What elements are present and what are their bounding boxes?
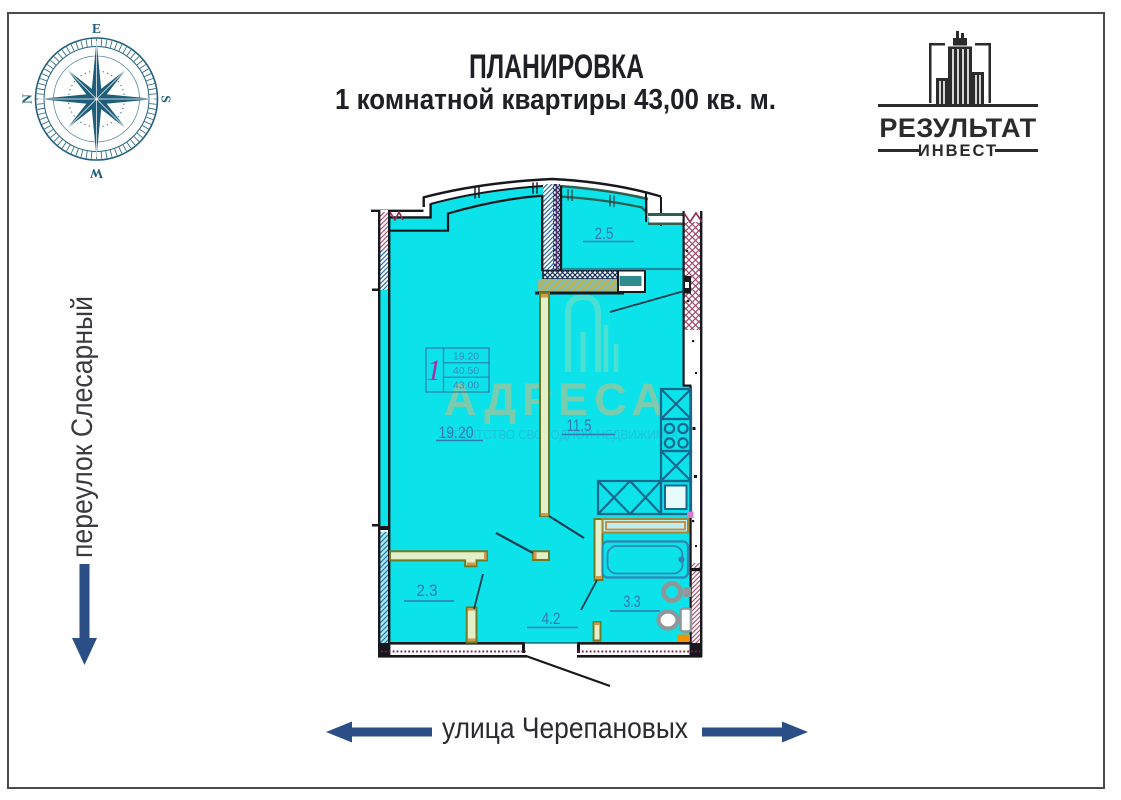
svg-text:S: S [158, 95, 173, 103]
svg-text:ИНВЕСТ: ИНВЕСТ [918, 142, 998, 160]
svg-text:2.3: 2.3 [417, 581, 438, 600]
svg-text:3.3: 3.3 [624, 592, 641, 611]
svg-text:N: N [20, 94, 35, 104]
svg-text:1: 1 [427, 354, 442, 387]
svg-text:11.5: 11.5 [567, 416, 592, 435]
svg-text:4.2: 4.2 [542, 609, 561, 628]
svg-text:улица Черепановых: улица Черепановых [442, 712, 688, 745]
svg-text:W: W [89, 166, 103, 181]
svg-text:43.00: 43.00 [453, 380, 479, 392]
svg-text:E: E [92, 21, 101, 36]
svg-text:19.20: 19.20 [439, 423, 474, 442]
svg-text:РЕЗУЛЬТАТ: РЕЗУЛЬТАТ [879, 113, 1036, 143]
svg-text:40.50: 40.50 [453, 365, 479, 377]
svg-text:19.20: 19.20 [453, 351, 479, 363]
svg-text:2.5: 2.5 [595, 224, 614, 243]
svg-text:1 комнатной квартиры 43,00 кв.: 1 комнатной квартиры 43,00 кв. м. [335, 84, 776, 116]
svg-text:ПЛАНИРОВКА: ПЛАНИРОВКА [469, 48, 644, 86]
svg-text:переулок Слесарный: переулок Слесарный [66, 296, 99, 558]
